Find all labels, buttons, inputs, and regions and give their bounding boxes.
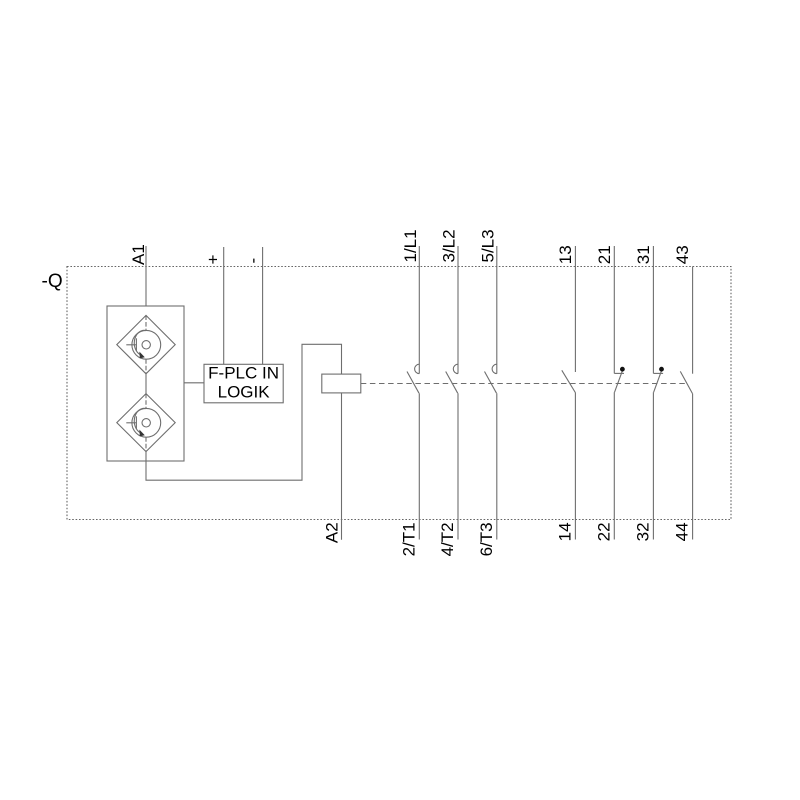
svg-text:+: +: [204, 255, 223, 265]
svg-text:22: 22: [594, 522, 613, 541]
svg-text:13: 13: [556, 245, 575, 264]
svg-text:3/L2: 3/L2: [440, 229, 459, 262]
svg-text:5/L3: 5/L3: [478, 229, 497, 262]
svg-text:-Q: -Q: [42, 271, 63, 292]
svg-text:-: -: [243, 258, 262, 264]
svg-text:14: 14: [556, 522, 575, 541]
svg-text:21: 21: [595, 245, 614, 264]
svg-text:32: 32: [634, 522, 653, 541]
svg-text:2/T1: 2/T1: [399, 522, 418, 556]
svg-text:31: 31: [634, 245, 653, 264]
svg-text:F-PLC IN: F-PLC IN: [208, 363, 279, 382]
svg-text:43: 43: [673, 245, 692, 264]
svg-text:A1: A1: [129, 244, 148, 265]
svg-text:44: 44: [673, 522, 692, 541]
svg-text:6/T3: 6/T3: [477, 522, 496, 556]
svg-text:1/L1: 1/L1: [401, 229, 420, 262]
svg-text:A2: A2: [322, 522, 341, 543]
svg-text:LOGIK: LOGIK: [218, 382, 271, 401]
svg-text:4/T2: 4/T2: [438, 522, 457, 556]
